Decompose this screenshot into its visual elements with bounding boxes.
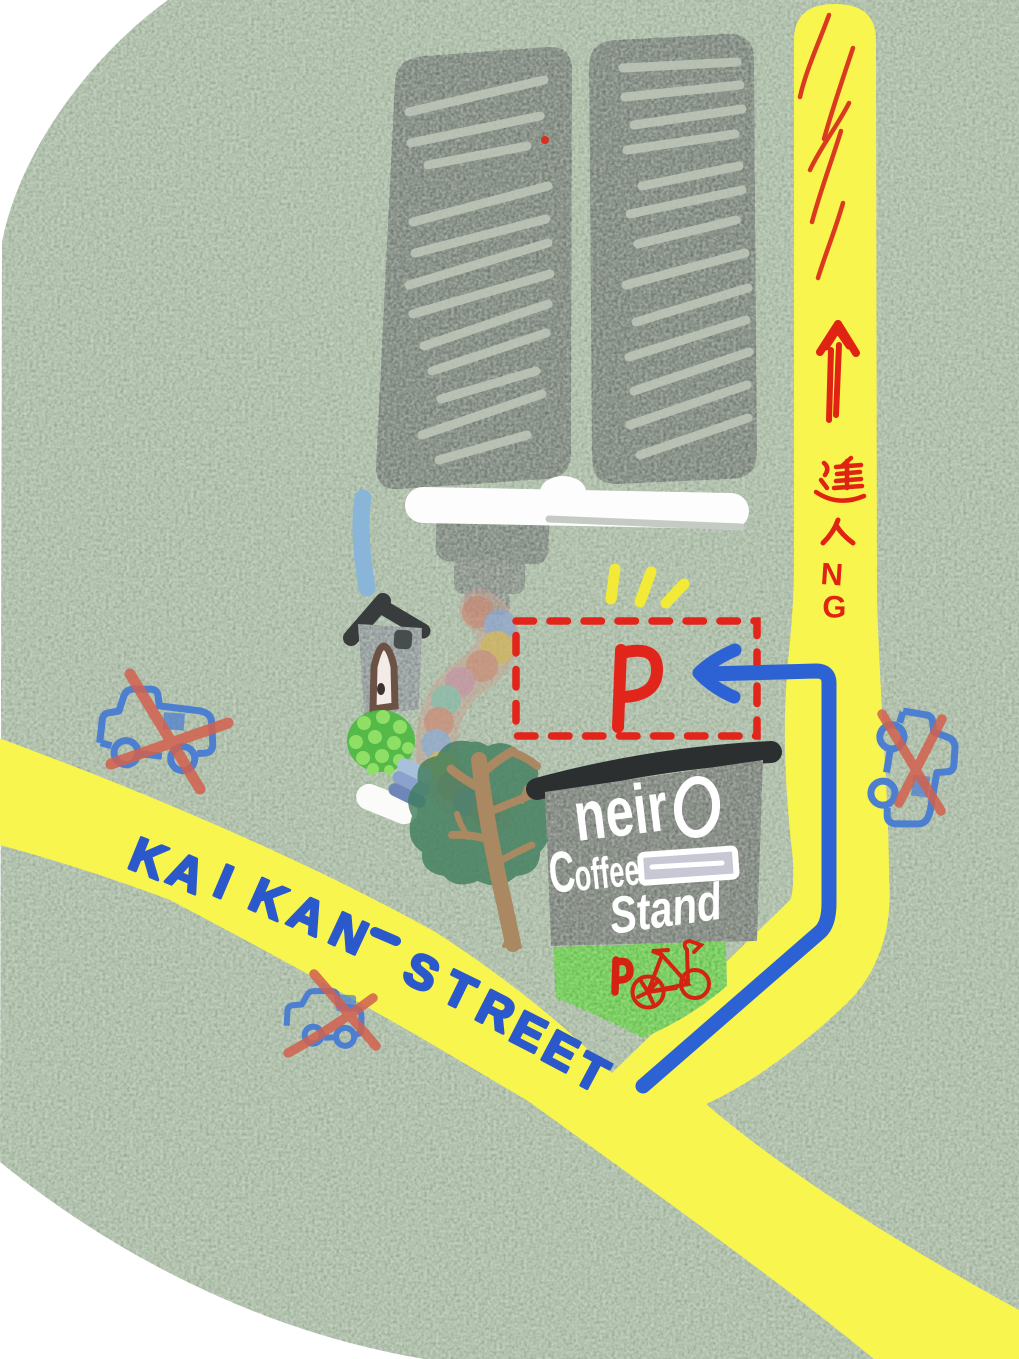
svg-text:G: G bbox=[822, 589, 847, 625]
svg-text:N: N bbox=[820, 556, 845, 592]
svg-text:neir: neir bbox=[569, 767, 671, 856]
